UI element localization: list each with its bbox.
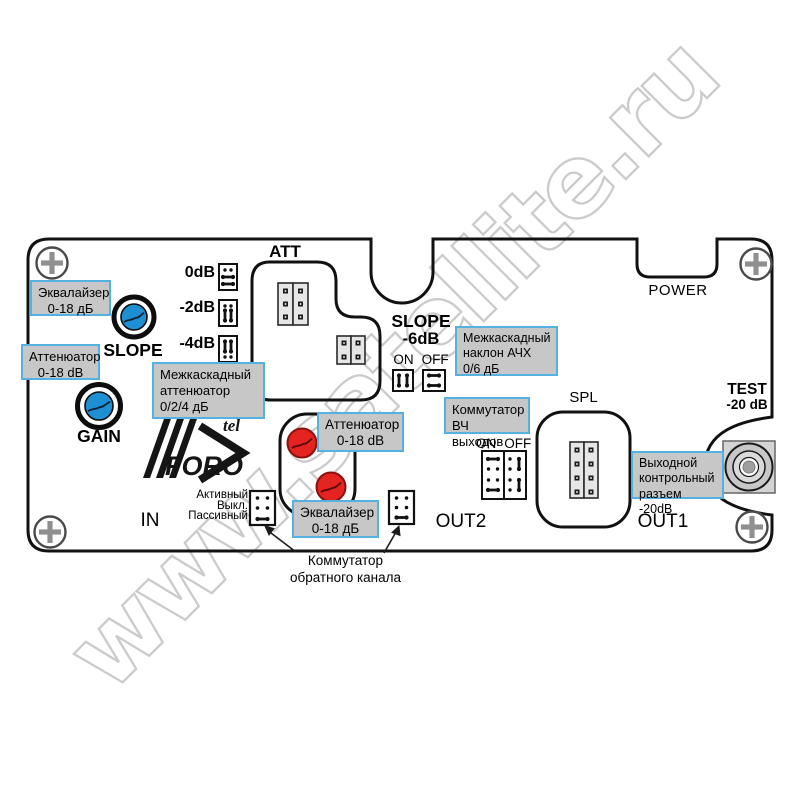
callout-line: 0-18 дБ: [300, 521, 371, 537]
slope6-title: SLOPE: [384, 313, 458, 331]
jumper-0db: [219, 264, 237, 290]
jumper-return-switch-2: [389, 491, 414, 524]
jumper-slope-off: [423, 370, 445, 391]
callout-line: 0/6 дБ: [463, 362, 550, 377]
callout-line: Выходной: [639, 456, 716, 471]
out2-port-label: OUT2: [432, 511, 490, 533]
slope6-onoff: ONOFF: [384, 352, 458, 367]
callout-line: разъем -20dB: [639, 487, 716, 518]
callout-line: Межкаскадный: [160, 367, 257, 383]
spl-region-label: SPL: [556, 389, 611, 406]
callout-line: 0-18 dB: [325, 433, 396, 449]
callout-line: 0-18 дБ: [38, 301, 103, 317]
corner-screw-top-right: [741, 249, 772, 280]
in-port-label: IN: [130, 510, 170, 532]
callout-line: Аттенюатор: [325, 417, 396, 433]
corner-screw-top-left: [37, 248, 68, 279]
callout-interstage-slope: Межкаскадный наклон АЧХ 0/6 дБ: [455, 326, 558, 376]
slope6-on-label: ON: [393, 352, 413, 367]
diagram-canvas: { "watermark": {"text": "www.satellite.r…: [0, 0, 800, 800]
slope-knob: [114, 297, 154, 337]
board-diagram-svg: www.satellite.ru: [0, 0, 800, 800]
jumper-return-switch-1: [250, 491, 275, 525]
callout-line: контрольный: [639, 471, 716, 486]
jumper-rf-out-switch: [482, 451, 526, 499]
callout-equalizer-fwd: Эквалайзер 0-18 дБ: [30, 280, 111, 316]
return-switch-caption-line2: обратного канала: [268, 570, 423, 587]
callout-line: 0-18 dB: [29, 365, 92, 381]
callout-line: Межкаскадный: [463, 331, 550, 346]
corner-screw-bottom-left: [35, 517, 66, 548]
return-switch-modes: Активный Выкл. Пассивный: [178, 490, 248, 522]
pin-header-att-6pin: [278, 283, 308, 325]
slope-knob-label: SLOPE: [98, 340, 168, 361]
logo-brand: FORO: [165, 451, 243, 481]
return-mode-passive: Пассивный: [178, 511, 248, 522]
callout-line: наклон АЧХ: [463, 346, 550, 361]
slope6-value: -6dB: [384, 331, 458, 348]
callout-line: 0/2/4 дБ: [160, 399, 257, 415]
return-equalizer-knob: [317, 473, 346, 502]
return-switch-caption: Коммутатор обратного канала: [268, 553, 423, 587]
callout-rf-out-switch: Коммутатор ВЧ выходов: [444, 397, 530, 434]
callout-equalizer-ret: Эквалайзер 0-18 дБ: [292, 500, 379, 538]
callout-line: Эквалайзер: [300, 505, 371, 521]
jumper-2db: [219, 300, 237, 326]
jumper-4db: [219, 336, 237, 362]
interstage-att-option-2db: -2dB: [158, 299, 215, 317]
return-switch-caption-line1: Коммутатор: [268, 553, 423, 570]
slope6-off-label: OFF: [422, 352, 449, 367]
callout-attenuator-fwd: Аттенюатор 0-18 dB: [21, 344, 100, 380]
pin-header-att-4pin: [337, 336, 365, 364]
jumper-slope-on: [393, 370, 413, 391]
pin-header-spl: [570, 442, 598, 498]
callout-output-test: Выходной контрольный разъем -20dB: [631, 451, 724, 499]
test-point-level: -20 dB: [716, 398, 778, 413]
callout-line: Коммутатор: [452, 402, 522, 418]
power-port-label: POWER: [638, 282, 718, 299]
gain-knob-label: GAIN: [68, 426, 130, 447]
att-region-label: ATT: [258, 242, 312, 262]
callout-line: Аттенюатор: [29, 349, 92, 365]
return-mode-active: Активный: [178, 490, 248, 501]
interstage-att-option-0db: 0dB: [158, 264, 215, 282]
test-point-title: TEST: [716, 382, 778, 398]
callout-line: аттенюатор: [160, 383, 257, 399]
slope6-block: SLOPE -6dB ONOFF: [384, 313, 458, 367]
corner-screw-bottom-right: [737, 512, 768, 543]
test-point-block: TEST -20 dB: [716, 382, 778, 412]
callout-line: Эквалайзер: [38, 285, 103, 301]
return-attenuator-knob: [288, 429, 317, 458]
callout-interstage-att: Межкаскадный аттенюатор 0/2/4 дБ: [152, 362, 265, 419]
callout-line: ВЧ выходов: [452, 418, 522, 450]
coax-test-connector: [723, 441, 775, 493]
gain-knob: [78, 385, 121, 428]
callout-attenuator-ret: Аттенюатор 0-18 dB: [317, 412, 404, 452]
